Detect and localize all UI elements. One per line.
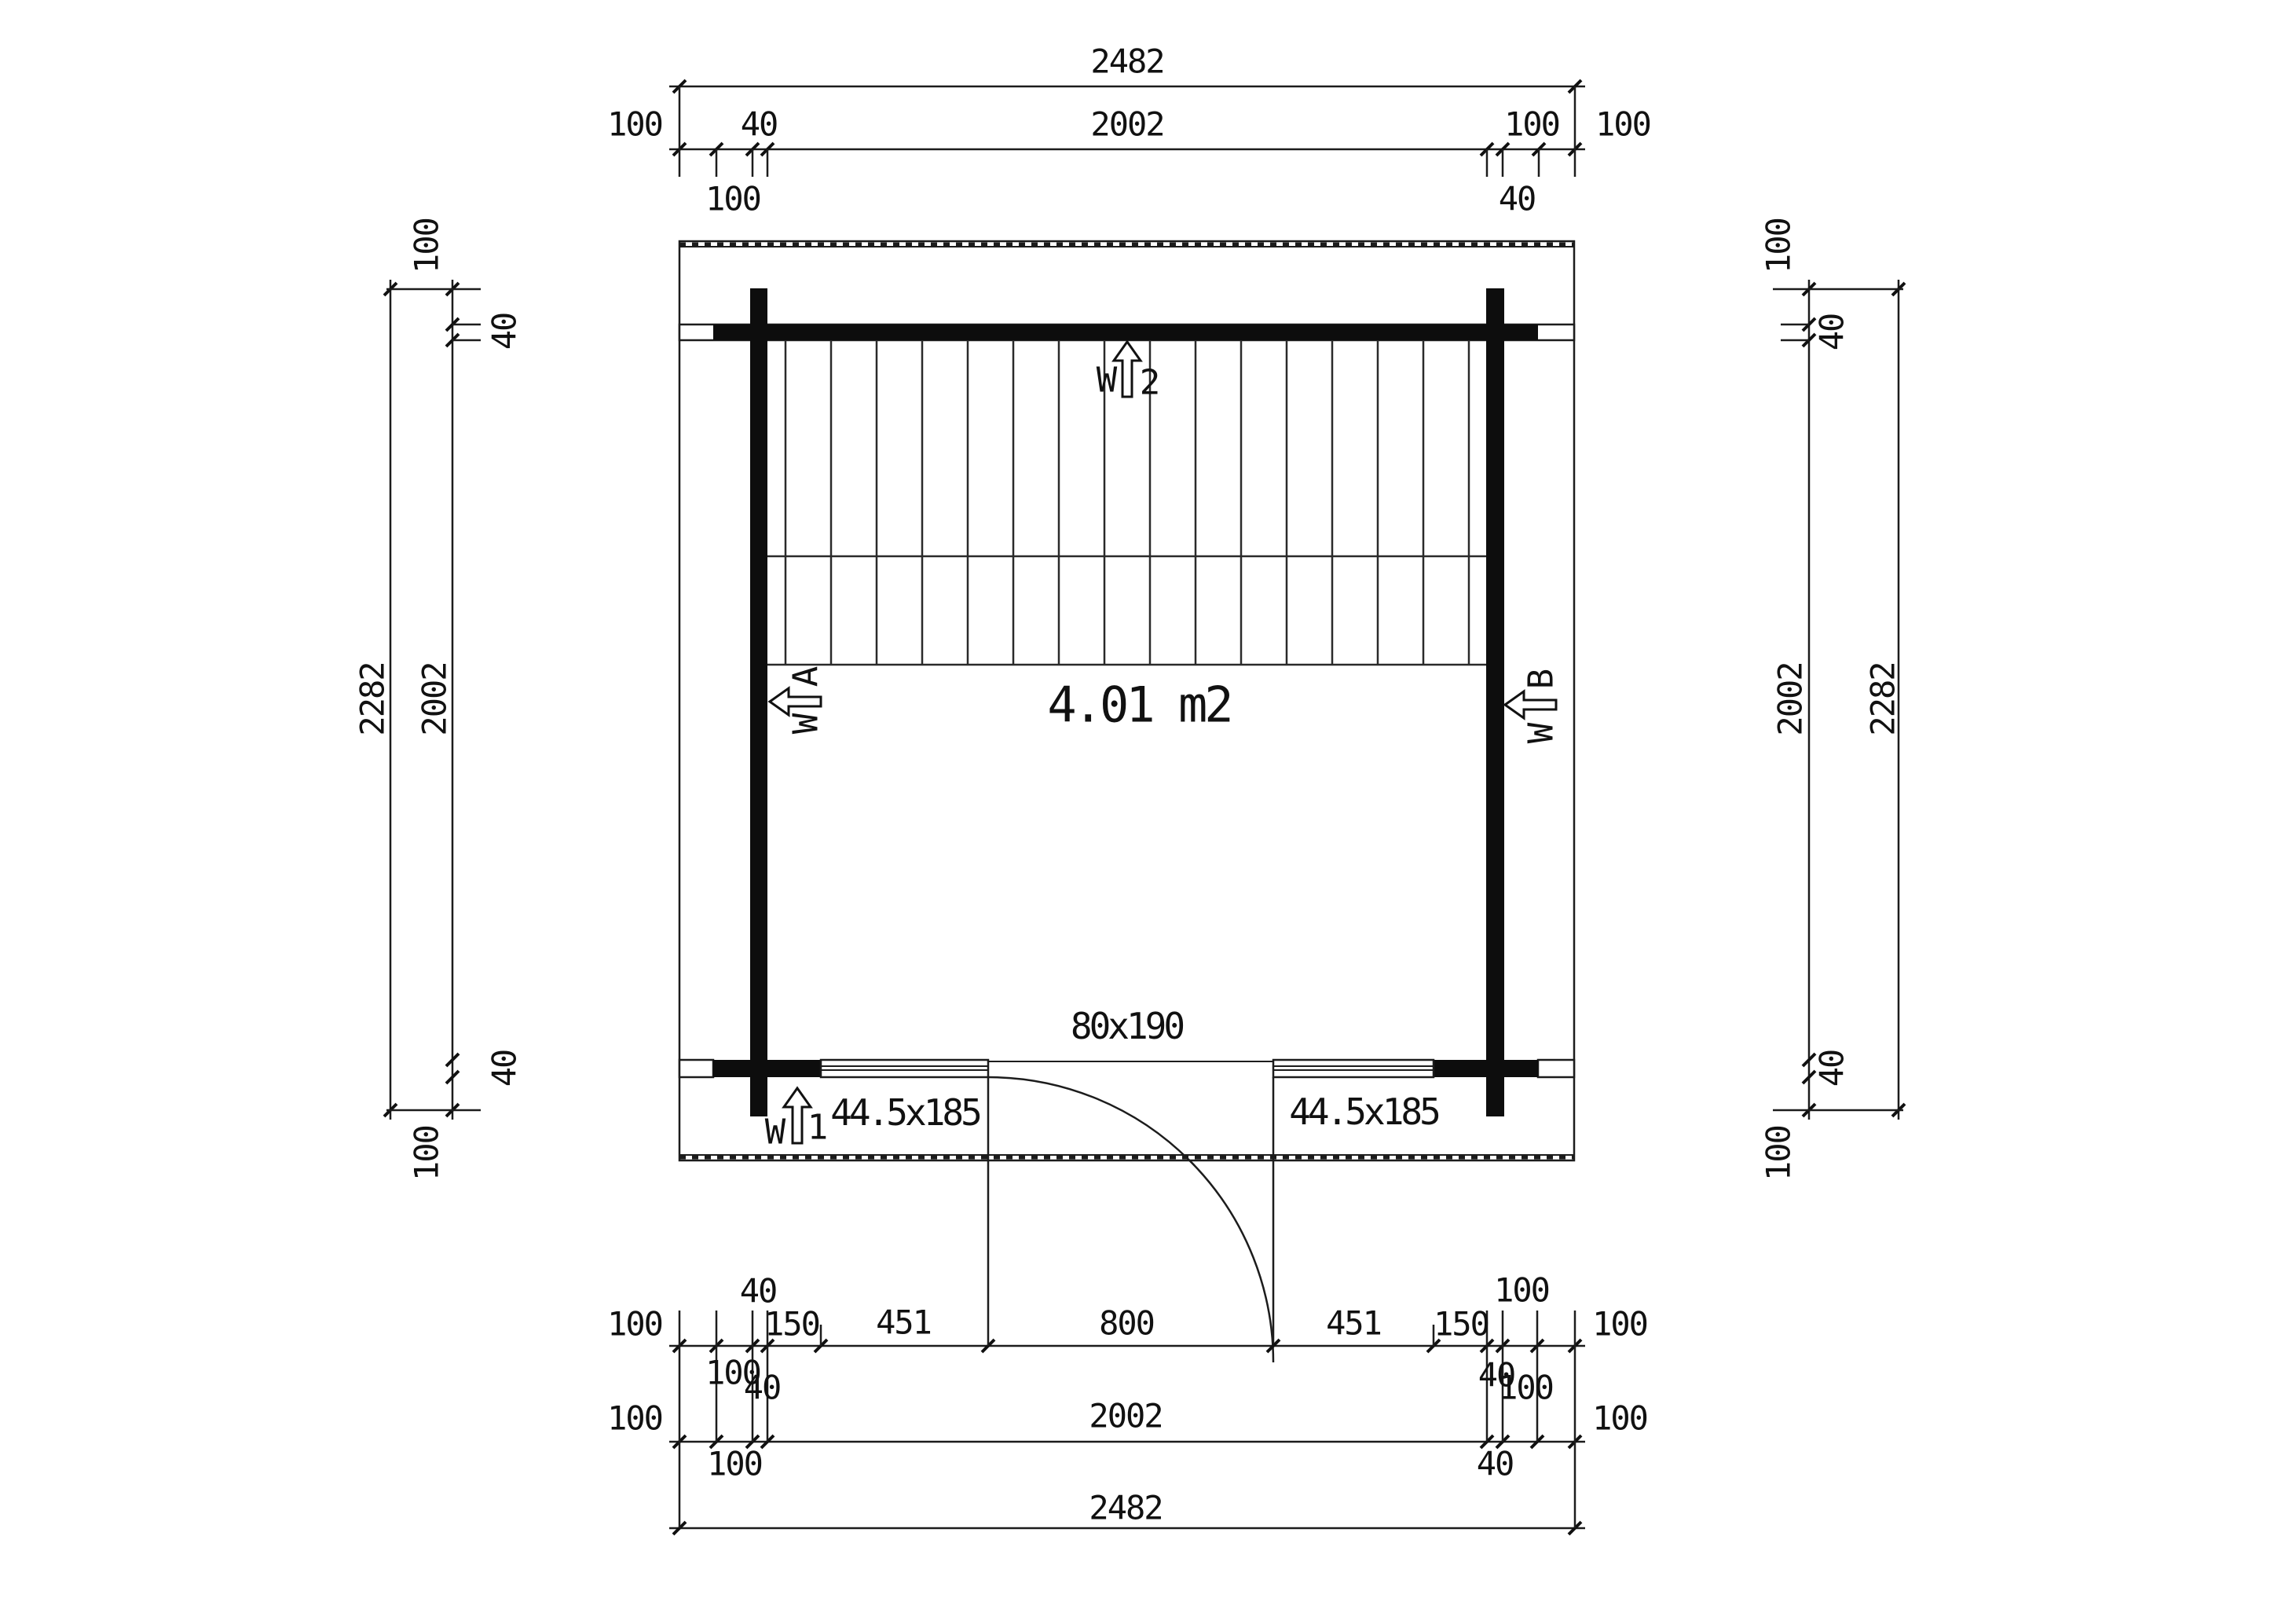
left-wall [750, 288, 767, 1116]
dim-40-left-bottom: 40 [485, 1050, 524, 1087]
window-opening [1273, 1060, 1434, 1077]
dim-100-bottom-right-outer: 100 [1592, 1305, 1647, 1344]
dim-451-bottom-right: 451 [1326, 1304, 1381, 1343]
marker-wa-letter-a: A [786, 666, 826, 687]
bottom-wall-cap-right [1538, 1060, 1574, 1077]
right-wall [1486, 288, 1504, 1116]
dim-40-top-right-below: 40 [1499, 180, 1536, 218]
marker-w2-letter: W [1097, 361, 1118, 401]
dim-100-top-left-outer: 100 [607, 105, 662, 144]
dim-40-left-top: 40 [485, 313, 524, 350]
room-area-label: 4.01 m2 [1047, 676, 1230, 734]
dim-100-left-top: 100 [408, 218, 446, 273]
dim-800-bottom: 800 [1099, 1304, 1154, 1343]
dim-150-bottom-left: 150 [764, 1305, 819, 1344]
dim-451-bottom-left: 451 [876, 1303, 931, 1342]
marker-w2-arrow-icon [1114, 342, 1141, 397]
marker-w1-number: 1 [807, 1108, 827, 1148]
dim-2002-right: 2002 [1771, 662, 1810, 735]
dim-40-top-left: 40 [741, 105, 778, 144]
marker-wb-letter-w: W [1522, 722, 1562, 743]
dim-total-width-bottom: 2482 [1089, 1489, 1162, 1527]
dim-100-bottom-right-upper: 100 [1494, 1271, 1549, 1310]
dim-100-bottom-left-below: 100 [707, 1445, 762, 1483]
dim-total-width-top: 2482 [1090, 42, 1163, 81]
dim-100-left-bottom: 100 [408, 1126, 446, 1181]
dim-2282-right: 2282 [1864, 662, 1902, 735]
dim-40-bottom-left-mid: 40 [744, 1369, 781, 1407]
dim-40-right-top: 40 [1813, 314, 1851, 351]
dim-40-right-bottom: 40 [1813, 1050, 1851, 1087]
dim-100-top-right-a: 100 [1504, 105, 1559, 144]
dim-150-bottom-right: 150 [1434, 1305, 1489, 1344]
window-opening [821, 1060, 988, 1077]
floor-plan: 2482100402002100100100401004022822002401… [0, 0, 2296, 1624]
marker-wb-arrow-icon [1505, 691, 1556, 718]
dim-2002-top: 2002 [1090, 105, 1163, 144]
dim-100-top-left-below: 100 [705, 180, 760, 218]
dim-100-bottom-left-outer: 100 [607, 1305, 662, 1344]
dim-100-top-right-outer: 100 [1595, 105, 1650, 144]
dim-100-bottom-left-outer2: 100 [607, 1399, 662, 1438]
top-wall [713, 324, 1538, 340]
marker-w2-number: 2 [1140, 363, 1159, 403]
dim-100-right-bottom: 100 [1760, 1126, 1798, 1181]
window-size-label-right: 44.5x185 [1289, 1091, 1439, 1133]
dim-2002-left: 2002 [416, 662, 454, 735]
marker-wa-letter-w: W [786, 713, 826, 734]
dim-100-bottom-right-mid: 100 [1498, 1369, 1553, 1407]
bottom-wall-cap-left [679, 1060, 713, 1077]
dim-40-bottom-right-below: 40 [1477, 1445, 1514, 1483]
marker-w1-letter: W [765, 1113, 786, 1153]
dim-2002-bottom: 2002 [1089, 1397, 1162, 1435]
text-labels: 2482100402002100100100401004022822002401… [353, 42, 1902, 1527]
dim-100-bottom-right-outer2: 100 [1592, 1399, 1647, 1438]
marker-wa-arrow-icon [770, 688, 821, 715]
door-size-label: 80x190 [1071, 1005, 1183, 1047]
dim-100-right-top: 100 [1760, 218, 1798, 273]
marker-wb-letter-b: B [1522, 669, 1562, 689]
bottom-wall-right [1434, 1060, 1538, 1077]
window-size-label-left: 44.5x185 [830, 1091, 980, 1134]
dim-2282-left: 2282 [353, 662, 392, 735]
